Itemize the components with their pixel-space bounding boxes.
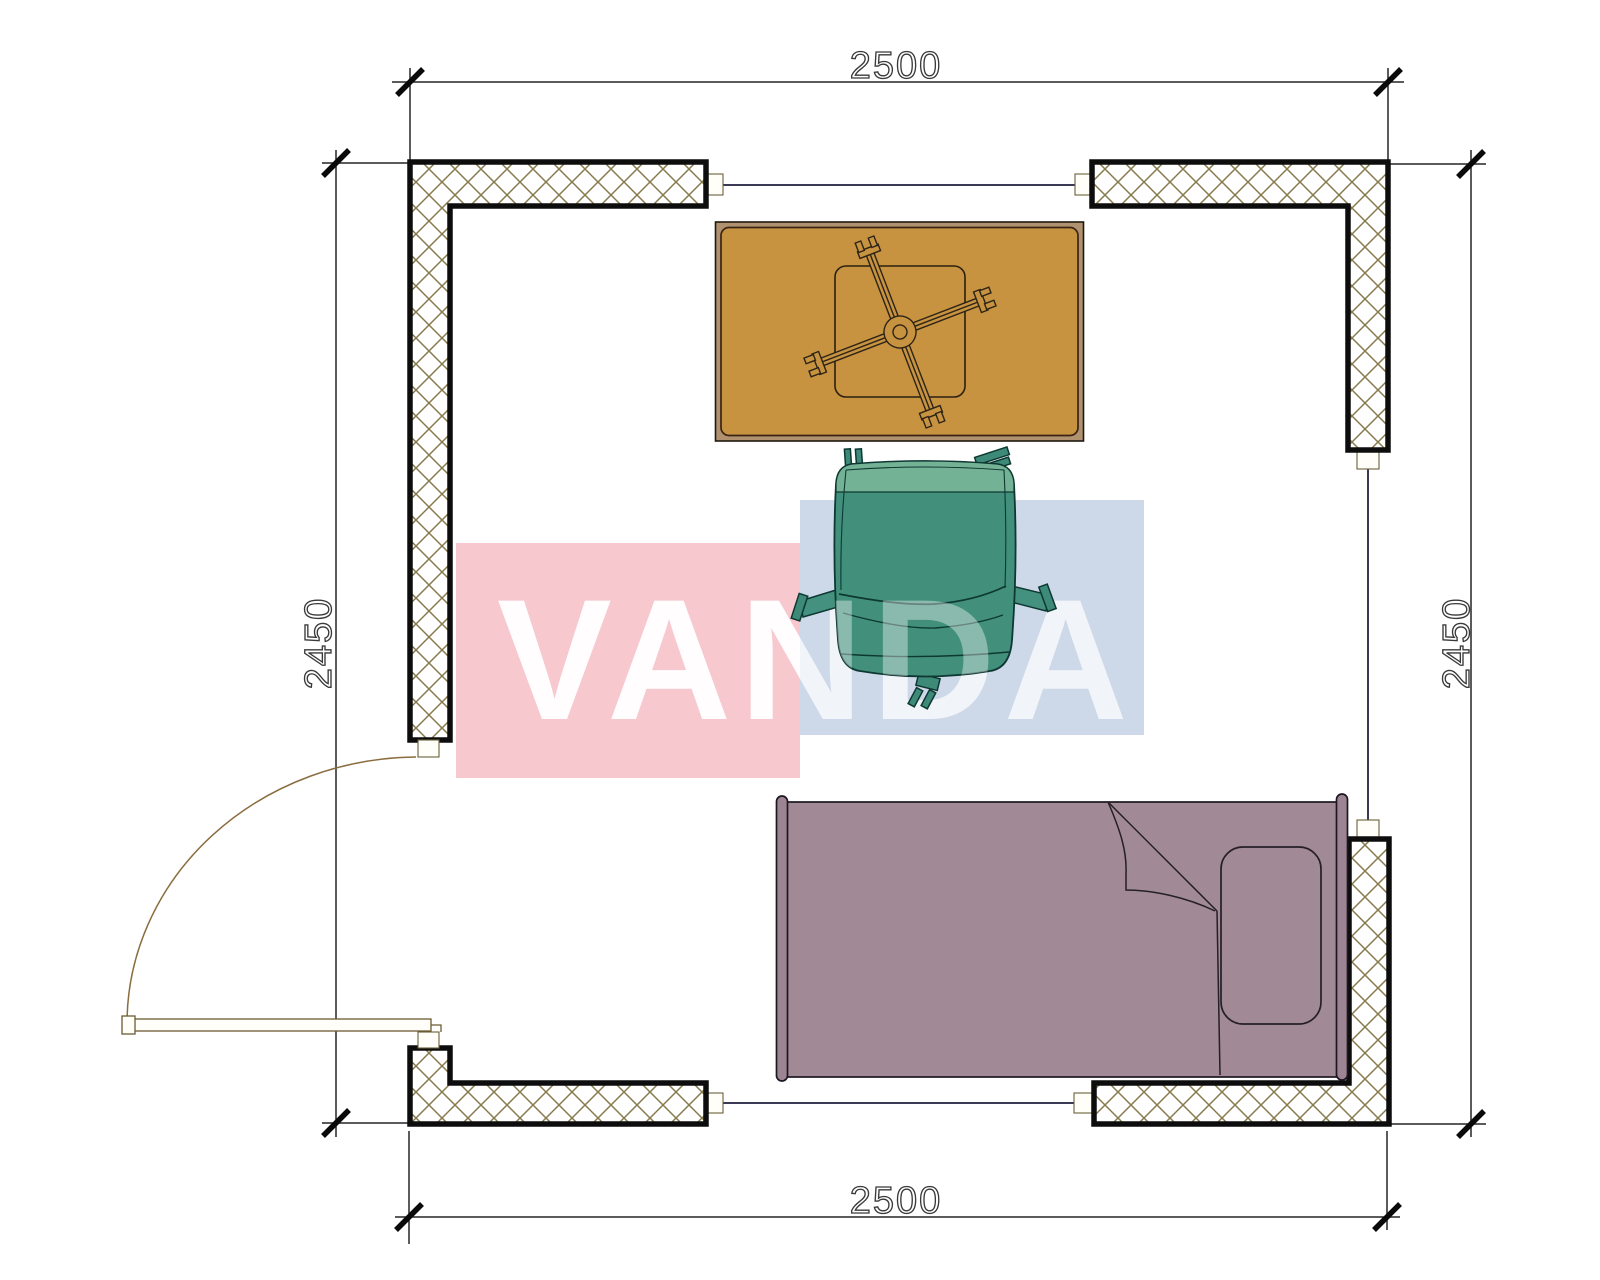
svg-text:2500: 2500 <box>850 1180 943 1222</box>
svg-text:2450: 2450 <box>298 597 340 690</box>
svg-text:2450: 2450 <box>1436 597 1478 690</box>
svg-text:2500: 2500 <box>850 45 943 87</box>
